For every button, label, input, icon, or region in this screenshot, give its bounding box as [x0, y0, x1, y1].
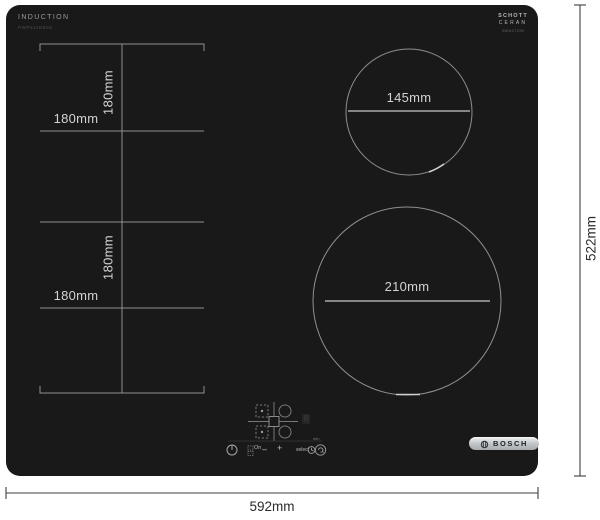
- overall-height-label: 522mm: [584, 209, 599, 269]
- schott-logo-line1: SCHOTT: [494, 13, 532, 19]
- minus-key-label: –: [262, 444, 267, 454]
- on-label: On: [254, 445, 261, 451]
- front-left-zone-width-label: 180mm: [48, 288, 104, 303]
- timer-clock-icon: [308, 447, 315, 454]
- power-icon: [227, 445, 237, 455]
- schott-ceran-logo: SCHOTT CERAN INDUCTION: [494, 13, 532, 33]
- minutes-label: min: [313, 436, 319, 441]
- model-number-label: PWP611BB5E: [18, 25, 53, 30]
- flex-zone-lines: [40, 44, 204, 393]
- back-right-zone-diameter-label: 145mm: [379, 90, 439, 105]
- overall-width-label: 592mm: [222, 499, 322, 514]
- bosch-logo-badge: BOSCH: [469, 437, 539, 450]
- schott-logo-line3: INDUCTION: [494, 29, 532, 33]
- back-left-zone-width-label: 180mm: [48, 111, 104, 126]
- zone-selector-minimap: [248, 402, 298, 441]
- control-right-icon: [315, 445, 325, 455]
- front-left-zone-height-label: 180mm: [101, 228, 116, 288]
- product-dimension-diagram: INDUCTION PWP611BB5E SCHOTT CERAN INDUCT…: [0, 0, 600, 520]
- front-right-zone-diameter-label: 210mm: [377, 279, 437, 294]
- bosch-logo-text: BOSCH: [493, 440, 528, 448]
- select-key-label: select: [296, 447, 309, 453]
- induction-type-label: INDUCTION: [18, 14, 70, 21]
- plus-key-label: +: [277, 443, 282, 453]
- flex-zone-icon: [248, 446, 253, 456]
- dimension-lines: [6, 5, 586, 499]
- schott-logo-line2: CERAN: [494, 20, 532, 26]
- bosch-anchor-icon: [480, 440, 489, 449]
- power-level-display: 8: [302, 414, 310, 424]
